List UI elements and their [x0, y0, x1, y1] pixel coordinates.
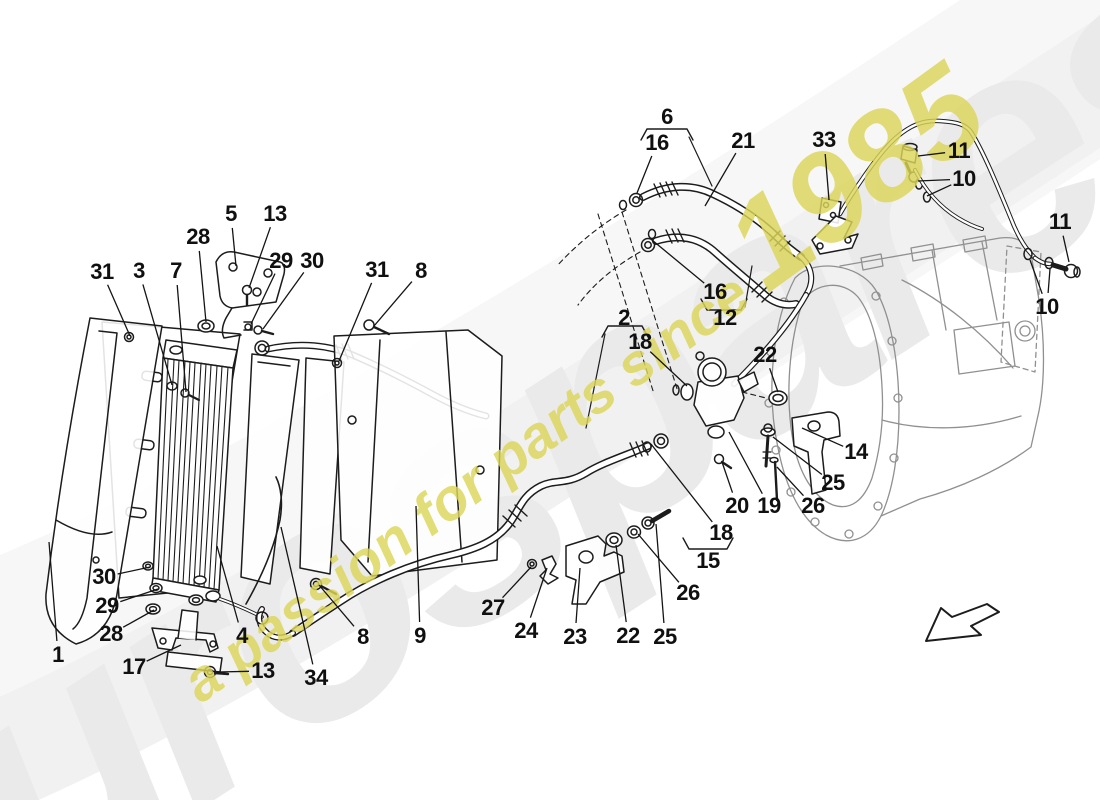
part-number-label: 27 — [481, 595, 504, 621]
part-number-label: 30 — [300, 248, 323, 274]
part-number-label: 25 — [653, 624, 676, 650]
part-number-label: 25 — [821, 470, 844, 496]
part-number-label: 24 — [514, 618, 537, 644]
part-number-label: 33 — [812, 127, 835, 153]
part-number-label: 12 — [713, 305, 736, 331]
part-number-label: 13 — [251, 658, 274, 684]
part-number-label: 30 — [92, 564, 115, 590]
part-number-label: 8 — [357, 624, 369, 650]
part-number-label: 15 — [696, 548, 719, 574]
part-number-layer: 3137285132930318616213311101110161221822… — [0, 0, 1100, 800]
part-number-label: 10 — [1035, 294, 1058, 320]
part-number-label: 29 — [269, 248, 292, 274]
part-number-label: 31 — [365, 257, 388, 283]
part-number-label: 9 — [414, 623, 426, 649]
part-number-label: 8 — [415, 258, 427, 284]
part-number-label: 28 — [186, 224, 209, 250]
part-number-label: 18 — [628, 329, 651, 355]
part-number-label: 20 — [725, 493, 748, 519]
part-number-label: 22 — [753, 342, 776, 368]
part-number-label: 34 — [304, 665, 327, 691]
part-number-label: 3 — [133, 258, 145, 284]
part-number-label: 16 — [703, 279, 726, 305]
part-number-label: 31 — [90, 259, 113, 285]
part-number-label: 11 — [1049, 209, 1071, 235]
part-number-label: 1 — [52, 642, 64, 668]
part-number-label: 19 — [757, 493, 780, 519]
part-number-label: 22 — [616, 623, 639, 649]
part-number-label: 5 — [225, 201, 237, 227]
part-number-label: 28 — [99, 621, 122, 647]
part-number-label: 7 — [170, 258, 182, 284]
part-number-label: 6 — [661, 104, 673, 130]
part-number-label: 2 — [618, 305, 630, 331]
part-number-label: 11 — [948, 138, 970, 164]
part-number-label: 10 — [952, 166, 975, 192]
part-number-label: 23 — [563, 624, 586, 650]
parts-diagram: eurospares — [0, 0, 1100, 800]
part-number-label: 16 — [645, 130, 668, 156]
part-number-label: 26 — [801, 493, 824, 519]
part-number-label: 4 — [236, 623, 248, 649]
part-number-label: 29 — [95, 593, 118, 619]
part-number-label: 14 — [844, 439, 867, 465]
part-number-label: 26 — [676, 580, 699, 606]
part-number-label: 21 — [731, 128, 754, 154]
part-number-label: 13 — [263, 201, 286, 227]
part-number-label: 17 — [122, 654, 145, 680]
part-number-label: 18 — [709, 520, 732, 546]
